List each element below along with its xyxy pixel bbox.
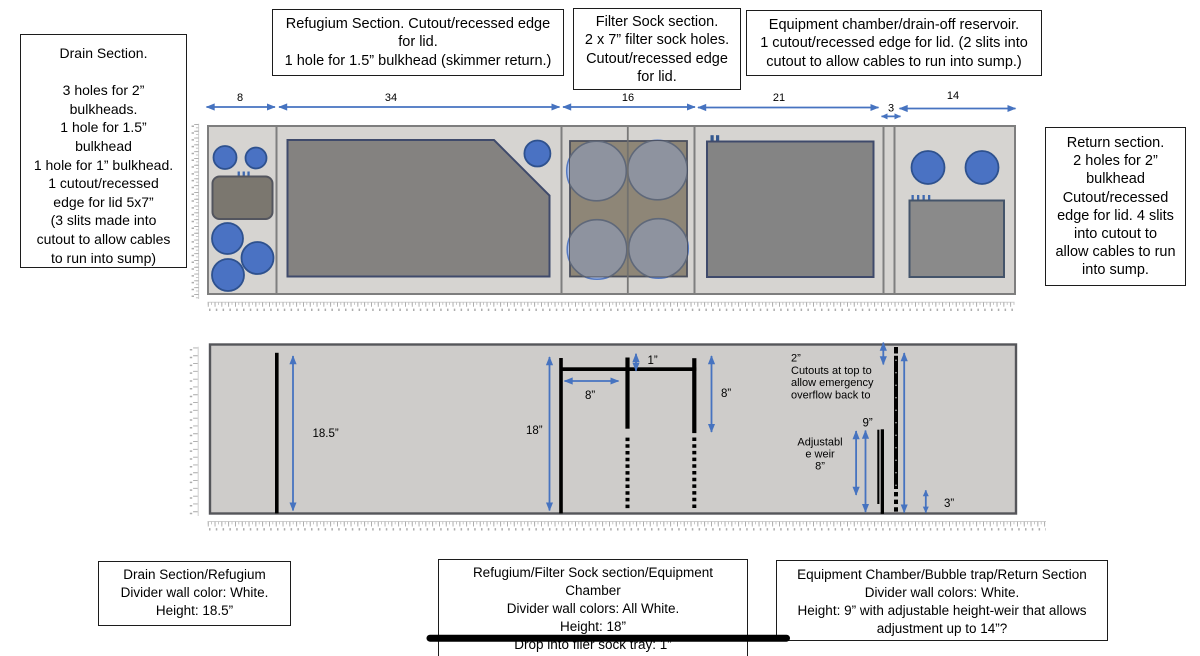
svg-text:8”: 8” bbox=[721, 388, 731, 400]
svg-text:allow emergency: allow emergency bbox=[791, 377, 874, 389]
svg-text:16: 16 bbox=[622, 92, 634, 104]
svg-text:2”: 2” bbox=[791, 352, 801, 364]
svg-text:Cutouts at top to: Cutouts at top to bbox=[791, 365, 872, 377]
svg-text:1”: 1” bbox=[648, 355, 658, 367]
svg-text:9”: 9” bbox=[863, 418, 873, 430]
svg-text:8”: 8” bbox=[585, 390, 595, 402]
svg-text:overflow back to: overflow back to bbox=[791, 389, 870, 401]
svg-text:21: 21 bbox=[773, 92, 785, 104]
svg-text:8: 8 bbox=[237, 92, 243, 104]
svg-text:18”: 18” bbox=[526, 425, 543, 437]
svg-text:34: 34 bbox=[385, 92, 397, 104]
svg-text:8”: 8” bbox=[815, 461, 825, 473]
svg-text:18.5”: 18.5” bbox=[313, 428, 339, 440]
svg-text:3”: 3” bbox=[944, 498, 954, 510]
svg-text:Adjustabl: Adjustabl bbox=[797, 437, 842, 449]
svg-text:e weir: e weir bbox=[805, 449, 835, 461]
svg-text:14: 14 bbox=[947, 90, 959, 102]
svg-text:3: 3 bbox=[888, 103, 894, 115]
